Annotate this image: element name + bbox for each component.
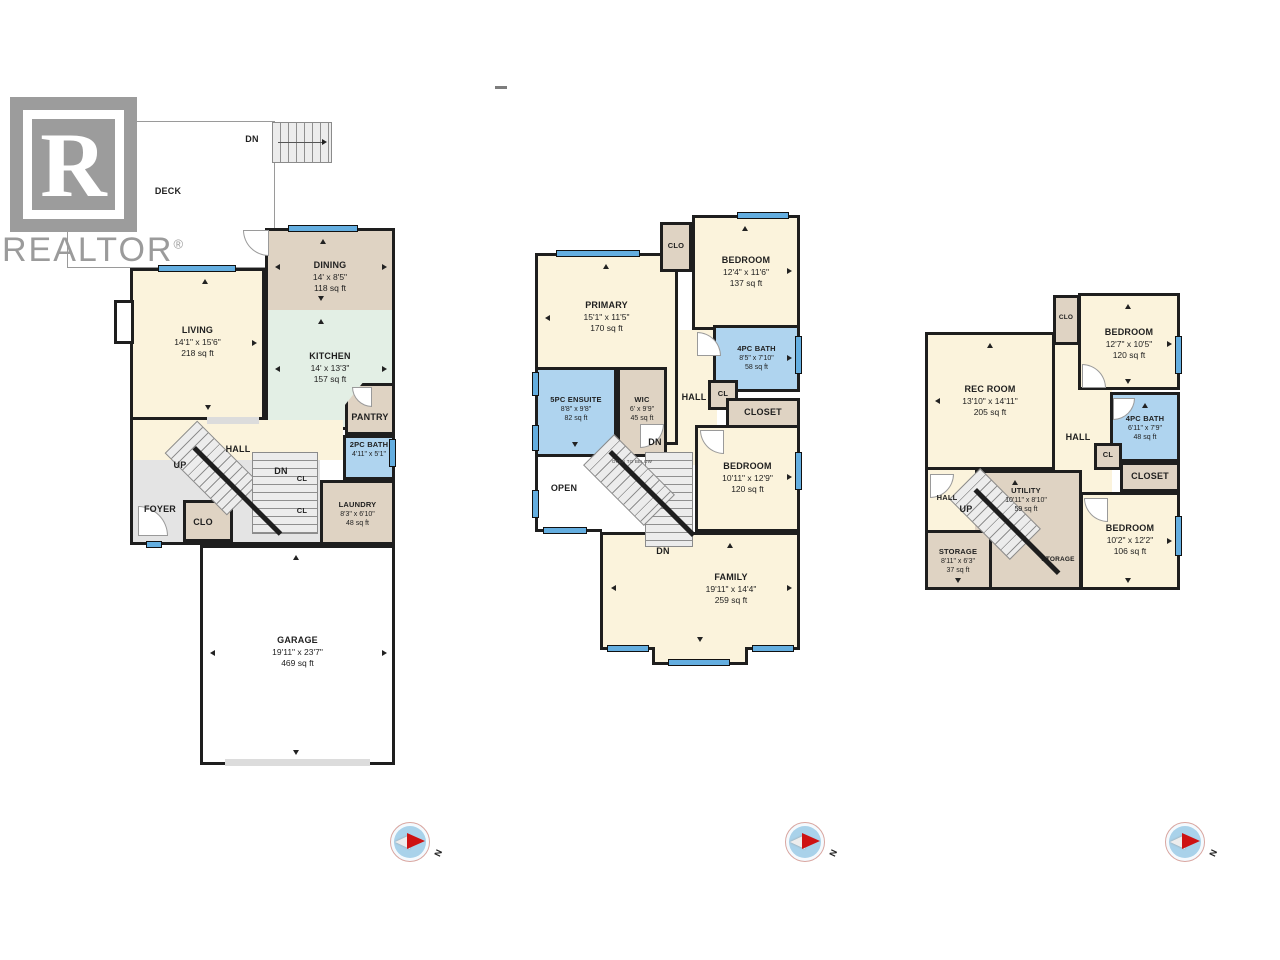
dimension-arrow <box>742 223 748 231</box>
dimension-arrow <box>293 552 299 560</box>
realtor-wordmark: REALTOR® <box>2 231 183 270</box>
window <box>795 452 802 490</box>
dimension-arrow <box>542 315 550 321</box>
fireplace-bump <box>114 300 134 344</box>
realtor-logo-box: R <box>10 97 137 232</box>
compass-icon: N <box>390 822 430 862</box>
window <box>556 250 640 257</box>
compass-north-label: N <box>827 848 839 858</box>
realtor-logo-letter: R <box>40 119 106 211</box>
window <box>389 439 396 467</box>
window <box>158 265 236 272</box>
dimension-arrow <box>293 750 299 758</box>
dimension-arrow <box>202 276 208 284</box>
realtor-logo-frame: R <box>23 110 124 219</box>
room-garage <box>200 545 395 765</box>
wall-opening <box>207 417 259 424</box>
dimension-arrow <box>572 442 578 450</box>
garage-door <box>225 759 370 766</box>
room-bedroom1-upper <box>692 215 800 330</box>
dimension-arrow <box>1125 301 1131 309</box>
compass-north-label: N <box>432 848 444 858</box>
room-dining <box>265 228 395 310</box>
dimension-arrow <box>1142 400 1148 408</box>
dimension-arrow <box>787 268 795 274</box>
dimension-arrow <box>787 474 795 480</box>
compass-needle <box>802 833 820 849</box>
dimension-arrow <box>382 366 390 372</box>
window <box>668 659 730 666</box>
compass-needle <box>1182 833 1200 849</box>
floorplan-canvas: R REALTOR® DECK DN <box>0 0 1280 960</box>
window <box>1175 336 1182 374</box>
room-laundry <box>320 480 395 545</box>
dimension-arrow <box>207 650 215 656</box>
dimension-arrow <box>955 578 961 586</box>
window <box>532 372 539 396</box>
dimension-arrow <box>608 585 616 591</box>
window <box>1175 516 1182 556</box>
realtor-wordmark-text: REALTOR <box>2 231 173 269</box>
room-closet-basement <box>1120 462 1180 492</box>
window <box>543 527 587 534</box>
dimension-arrow <box>1167 538 1175 544</box>
dimension-arrow <box>1012 477 1018 485</box>
room-cl-basement <box>1094 443 1122 470</box>
dimension-arrow <box>272 264 280 270</box>
room-living <box>130 268 265 420</box>
window <box>532 425 539 451</box>
dimension-arrow <box>320 236 326 244</box>
dimension-arrow <box>318 316 324 324</box>
dimension-arrow <box>1167 341 1175 347</box>
room-2pc-bath <box>343 435 395 480</box>
dimension-arrow <box>272 366 280 372</box>
dimension-arrow <box>727 540 733 548</box>
dimension-arrow <box>932 398 940 404</box>
window <box>737 212 789 219</box>
window <box>288 225 358 232</box>
compass-icon: N <box>1165 822 1205 862</box>
room-closet-upper <box>726 398 800 428</box>
window <box>146 541 162 548</box>
stairs-direction-line <box>278 142 324 143</box>
dimension-arrow <box>318 296 324 304</box>
dimension-arrow <box>205 405 211 413</box>
window <box>607 645 649 652</box>
dimension-arrow <box>1125 379 1131 387</box>
compass-north-label: N <box>1207 848 1219 858</box>
room-clo-basement <box>1053 295 1080 345</box>
window <box>752 645 794 652</box>
room-family <box>600 532 800 650</box>
dimension-arrow <box>787 355 795 361</box>
compass-icon: N <box>785 822 825 862</box>
stairs-direction-arrow <box>322 139 330 145</box>
stairs-down <box>252 452 318 534</box>
artifact-mark <box>495 86 507 89</box>
dimension-arrow <box>787 585 795 591</box>
window <box>795 336 802 374</box>
dimension-arrow <box>382 650 390 656</box>
dimension-arrow <box>252 340 260 346</box>
room-bedroom1-sliver <box>1053 345 1080 392</box>
window <box>532 490 539 518</box>
compass-needle <box>407 833 425 849</box>
room-clo-upper <box>660 222 692 272</box>
dimension-arrow <box>987 340 993 348</box>
dimension-arrow <box>697 637 703 645</box>
room-rec <box>925 332 1055 470</box>
dimension-arrow <box>1125 578 1131 586</box>
dimension-arrow <box>382 264 390 270</box>
registered-symbol: ® <box>173 237 183 252</box>
dimension-arrow <box>603 261 609 269</box>
